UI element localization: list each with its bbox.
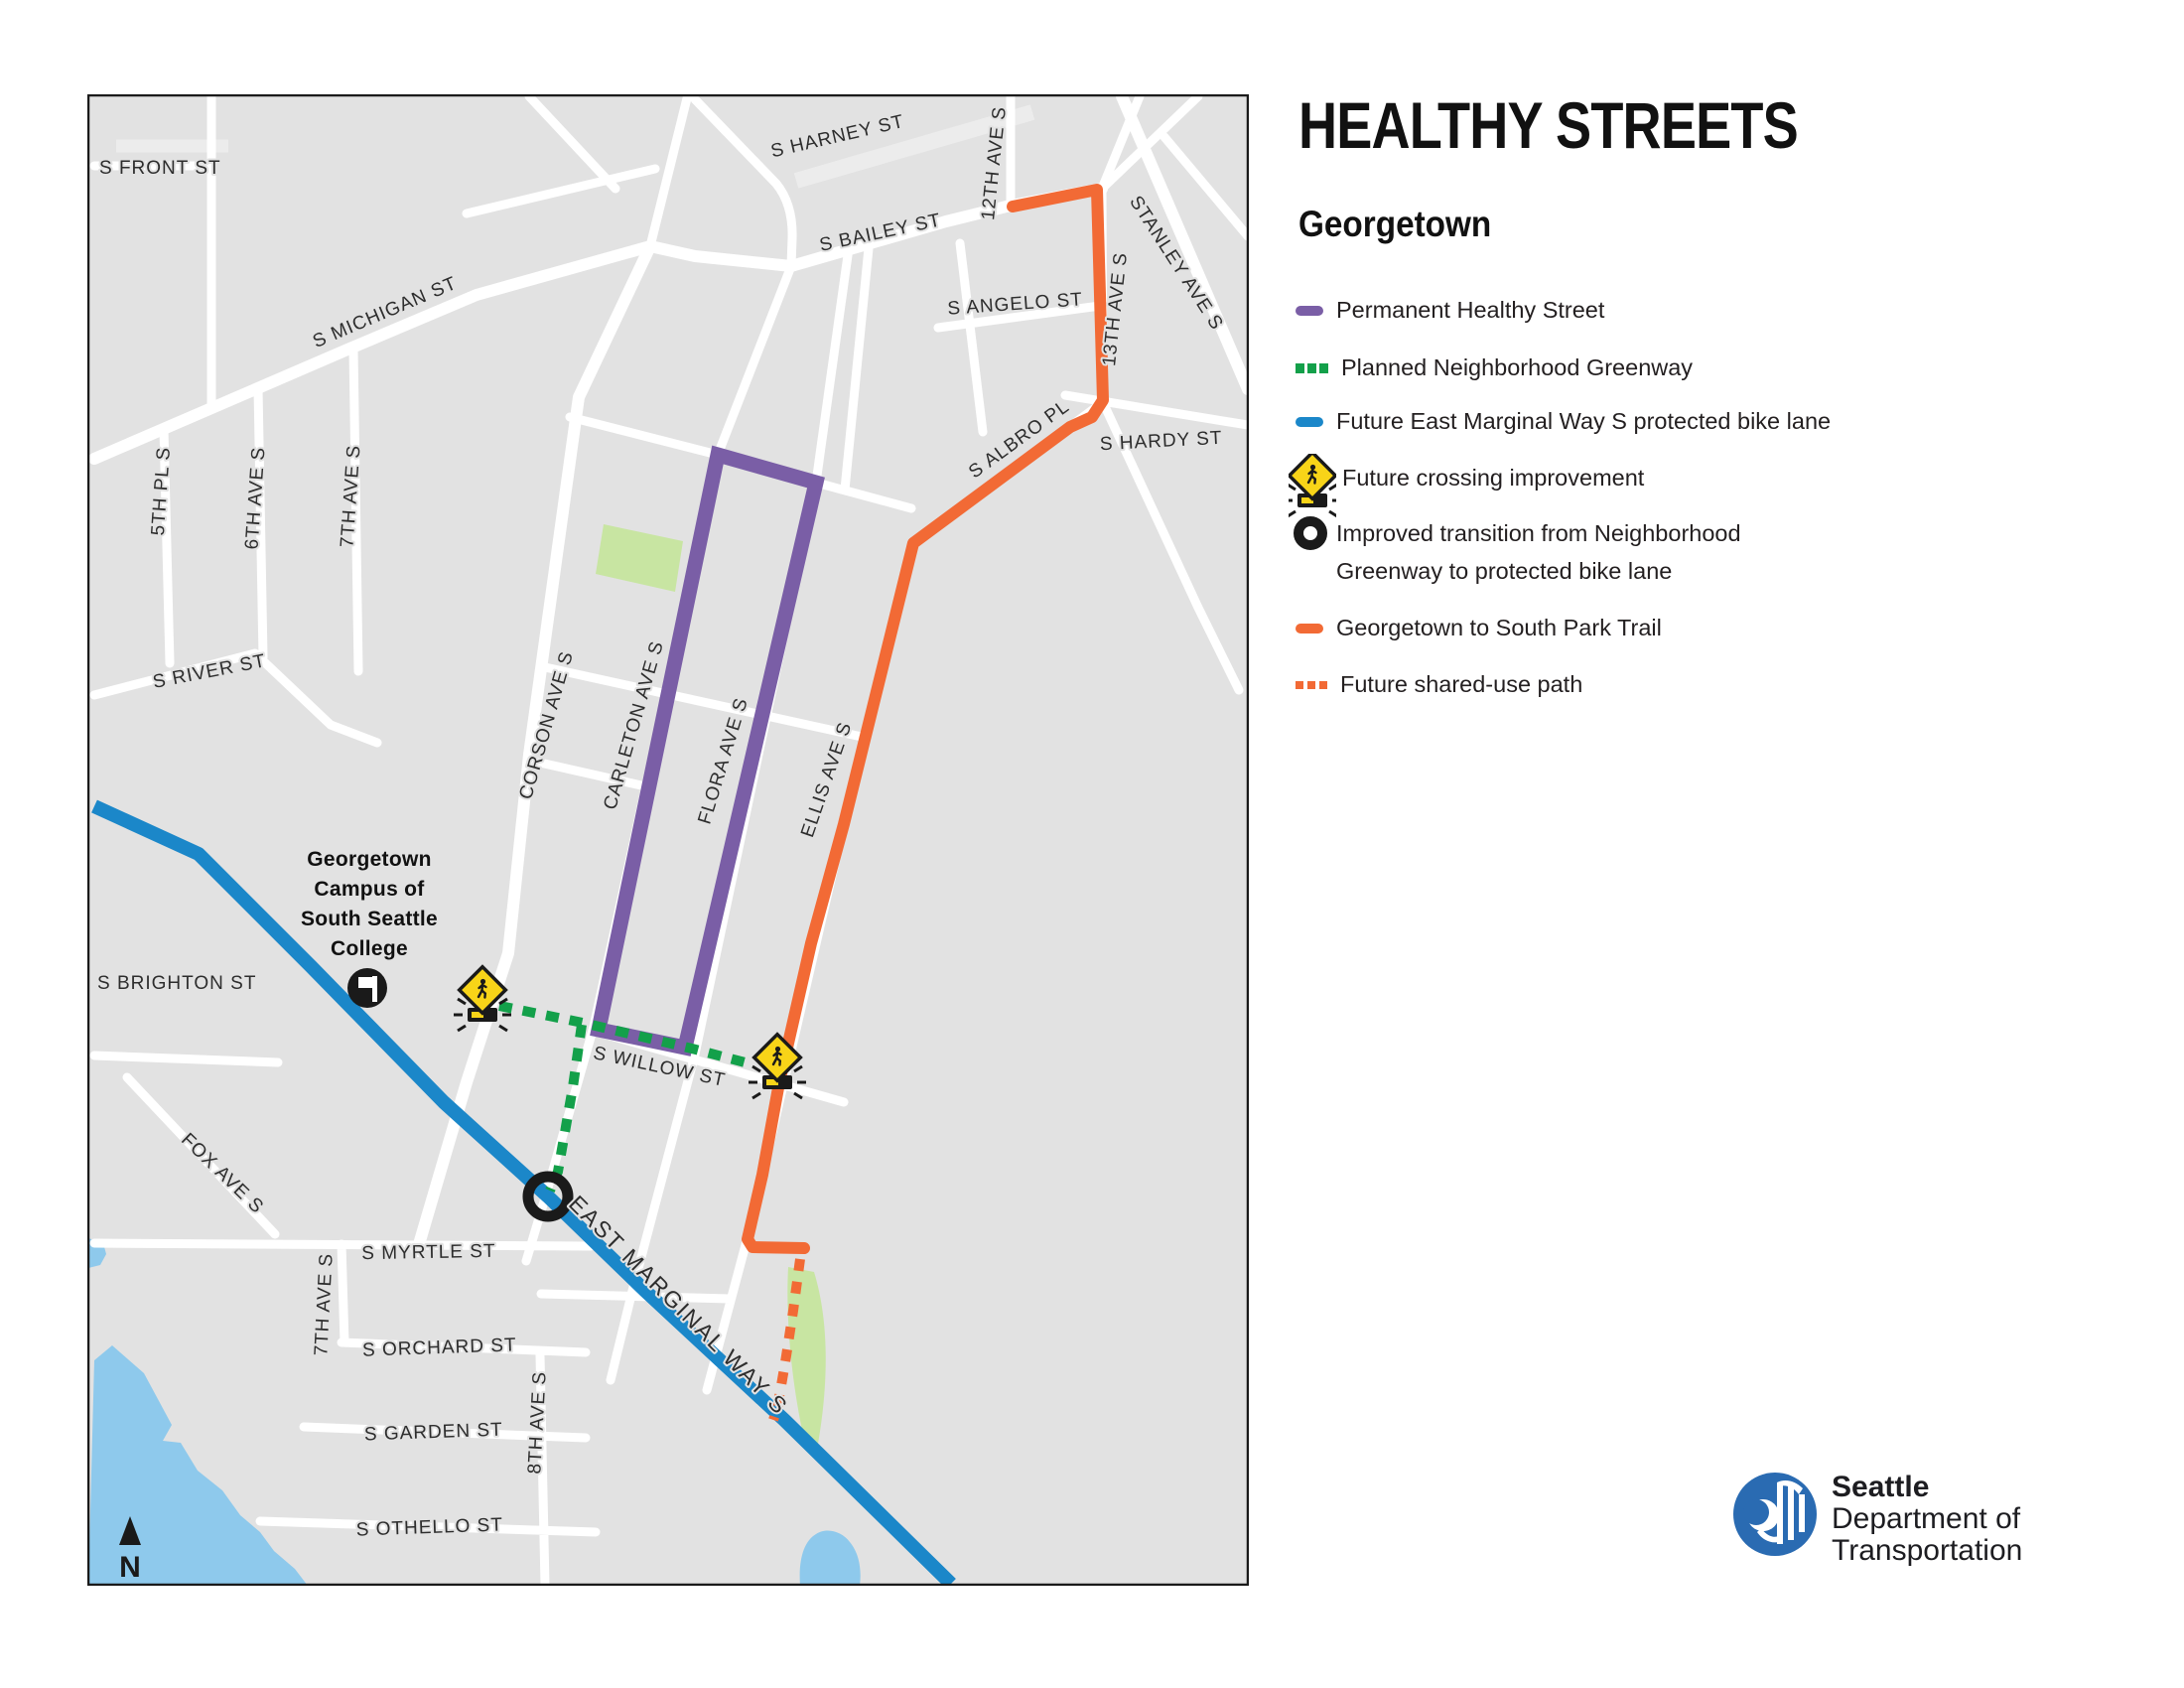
legend-swatch-blue-line	[1296, 417, 1323, 427]
legend-swatch-purple-line	[1296, 306, 1323, 316]
legend-item-crossing-improvement: Future crossing improvement	[1289, 454, 1644, 521]
college-flag-icon	[347, 968, 387, 1008]
street-label-front: S FRONT ST	[99, 158, 221, 179]
college-label-line4: College	[331, 937, 408, 960]
college-label-line2: Campus of	[314, 878, 425, 901]
map-background	[88, 95, 1248, 1585]
legend-label-line2: Greenway to protected bike lane	[1336, 558, 1672, 584]
street-label-brighton: S BRIGHTON ST	[97, 973, 256, 994]
sdot-logo: Seattle Department of Transportation	[1732, 1472, 2022, 1567]
georgetown-map: S FRONT ST S MICHIGAN ST S HARNEY ST S B…	[87, 94, 1249, 1586]
sdot-logo-text: Seattle Department of Transportation	[1832, 1472, 2022, 1567]
north-label: N	[119, 1551, 141, 1584]
legend-label: Future East Marginal Way S protected bik…	[1336, 408, 1831, 435]
legend-crossing-icon	[1289, 454, 1336, 521]
page: S FRONT ST S MICHIGAN ST S HARNEY ST S B…	[0, 0, 2184, 1688]
legend-label: Future shared-use path	[1340, 671, 1582, 698]
legend-item-improved-transition: Improved transition from Neighborhood Gr…	[1292, 514, 1741, 590]
logo-department-of: Department of	[1832, 1503, 2022, 1535]
street-label-myrtle: S MYRTLE ST	[361, 1241, 496, 1264]
legend-label: Improved transition from Neighborhood Gr…	[1336, 514, 1741, 590]
legend-label: Georgetown to South Park Trail	[1336, 615, 1662, 641]
legend-item-bike-lane: Future East Marginal Way S protected bik…	[1296, 408, 1831, 435]
legend-label: Planned Neighborhood Greenway	[1341, 354, 1693, 381]
logo-transportation: Transportation	[1832, 1535, 2022, 1567]
legend-swatch-orange-line	[1296, 624, 1323, 633]
legend-item-permanent-healthy-street: Permanent Healthy Street	[1296, 297, 1604, 324]
legend-circle-icon	[1292, 514, 1329, 552]
page-title: HEALTHY STREETS	[1298, 87, 1798, 163]
legend-swatch-green-dashes	[1296, 363, 1328, 373]
legend-item-trail: Georgetown to South Park Trail	[1296, 615, 1662, 641]
college-label-line3: South Seattle	[301, 908, 438, 930]
logo-seattle: Seattle	[1832, 1472, 2022, 1503]
legend-label: Future crossing improvement	[1342, 454, 1644, 492]
legend-label: Permanent Healthy Street	[1336, 297, 1604, 324]
legend-item-shared-use-path: Future shared-use path	[1296, 671, 1582, 698]
legend-label-line1: Improved transition from Neighborhood	[1336, 520, 1741, 546]
legend-item-planned-greenway: Planned Neighborhood Greenway	[1296, 354, 1693, 381]
page-subtitle: Georgetown	[1298, 204, 1491, 245]
legend-swatch-orange-dots	[1296, 681, 1327, 689]
college-label-line1: Georgetown	[307, 848, 432, 871]
seattle-city-logo-icon	[1732, 1472, 1818, 1557]
